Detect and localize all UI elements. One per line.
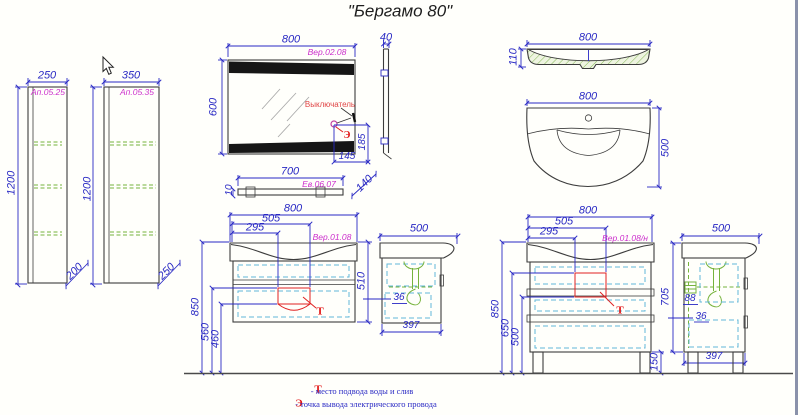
drawing-canvas bbox=[0, 0, 800, 415]
water-point-symbol: Т bbox=[316, 307, 323, 318]
dim-mirror-height: 600 bbox=[209, 98, 220, 116]
siphon-icon bbox=[404, 262, 424, 270]
dim-vfloor-850: 850 bbox=[491, 300, 502, 318]
washbasin-plan-drawing bbox=[527, 99, 662, 187]
dim-vfloor-295: 295 bbox=[540, 227, 558, 238]
dim-vfloor-500: 500 bbox=[511, 328, 522, 346]
page-title: "Бергамо 80" bbox=[348, 3, 452, 20]
mirror-side-drawing bbox=[381, 40, 392, 159]
dim-vwall-width: 800 bbox=[284, 204, 302, 215]
switch-label: Выключатель bbox=[305, 101, 355, 109]
dim-vwall-850: 850 bbox=[191, 298, 202, 316]
code-shelf: Ев.06.07 bbox=[302, 180, 336, 189]
dim-basin-plan-depth: 500 bbox=[661, 139, 672, 157]
code-vwall: Вер.01.08 bbox=[313, 233, 352, 242]
electric-point-symbol: Э bbox=[344, 131, 351, 141]
cabinet-350-drawing bbox=[90, 78, 180, 286]
dim-vwall-460: 460 bbox=[211, 330, 222, 348]
dim-vwall-height: 510 bbox=[357, 272, 368, 290]
dim-vwall-505: 505 bbox=[262, 214, 280, 225]
dim-vwallside-397: 397 bbox=[403, 321, 420, 331]
dim-vwall-295: 295 bbox=[246, 223, 264, 234]
water-point-symbol: Т bbox=[616, 306, 623, 317]
dim-vwallside-depth: 500 bbox=[410, 224, 428, 235]
washbasin-front-drawing bbox=[518, 40, 650, 69]
dim-vfloorside-36: 36 bbox=[695, 312, 706, 322]
dim-vwallside-36: 36 bbox=[393, 293, 404, 303]
dim-vfloor-legs: 150 bbox=[650, 353, 661, 371]
legend-e-text: - точка вывода электрического провода bbox=[295, 400, 437, 409]
dim-basin-plan-width: 800 bbox=[579, 92, 597, 103]
dim-vfloorside-depth: 500 bbox=[712, 224, 730, 235]
legend-t-text: - место подвода воды и слив bbox=[311, 387, 414, 396]
dim-cabinet350-width: 350 bbox=[122, 71, 140, 82]
dim-shelf-thickness: 10 bbox=[225, 184, 235, 195]
dim-mirror-side-depth: 40 bbox=[380, 33, 392, 44]
cabinet-250-drawing bbox=[15, 78, 88, 286]
dim-shelf-width: 700 bbox=[281, 167, 299, 178]
drawing-sheet: "Бергамо 80" 250 Ап.05.25 1200 200 350 А… bbox=[0, 0, 800, 415]
dim-basin-front-height: 110 bbox=[509, 48, 520, 66]
dim-mirror-185: 185 bbox=[358, 134, 368, 151]
dim-vfloorside-88: 88 bbox=[684, 294, 695, 304]
drain-zone bbox=[278, 288, 310, 304]
dim-mirror-145: 145 bbox=[339, 152, 356, 162]
dim-vfloor-width: 800 bbox=[579, 206, 597, 217]
dim-cabinet250-width: 250 bbox=[38, 71, 56, 82]
dim-vfloorside-397: 397 bbox=[706, 352, 723, 362]
dim-mirror-width: 800 bbox=[282, 35, 300, 46]
code-vfloor: Вер.01.08/н bbox=[602, 234, 648, 243]
code-mirror: Вер.02.08 bbox=[308, 48, 347, 57]
dim-vfloorside-height: 705 bbox=[661, 288, 672, 306]
water-inlet-icon bbox=[685, 282, 696, 293]
faucet-hole-icon bbox=[585, 115, 591, 121]
siphon-icon bbox=[706, 262, 726, 270]
dim-cabinet350-height: 1200 bbox=[83, 177, 94, 201]
code-cabinet250: Ап.05.25 bbox=[31, 88, 65, 97]
code-cabinet350: Ап.05.35 bbox=[120, 88, 154, 97]
dim-basin-front-width: 800 bbox=[579, 33, 597, 44]
dim-cabinet250-height: 1200 bbox=[7, 171, 18, 195]
mouse-cursor-icon bbox=[103, 57, 113, 74]
